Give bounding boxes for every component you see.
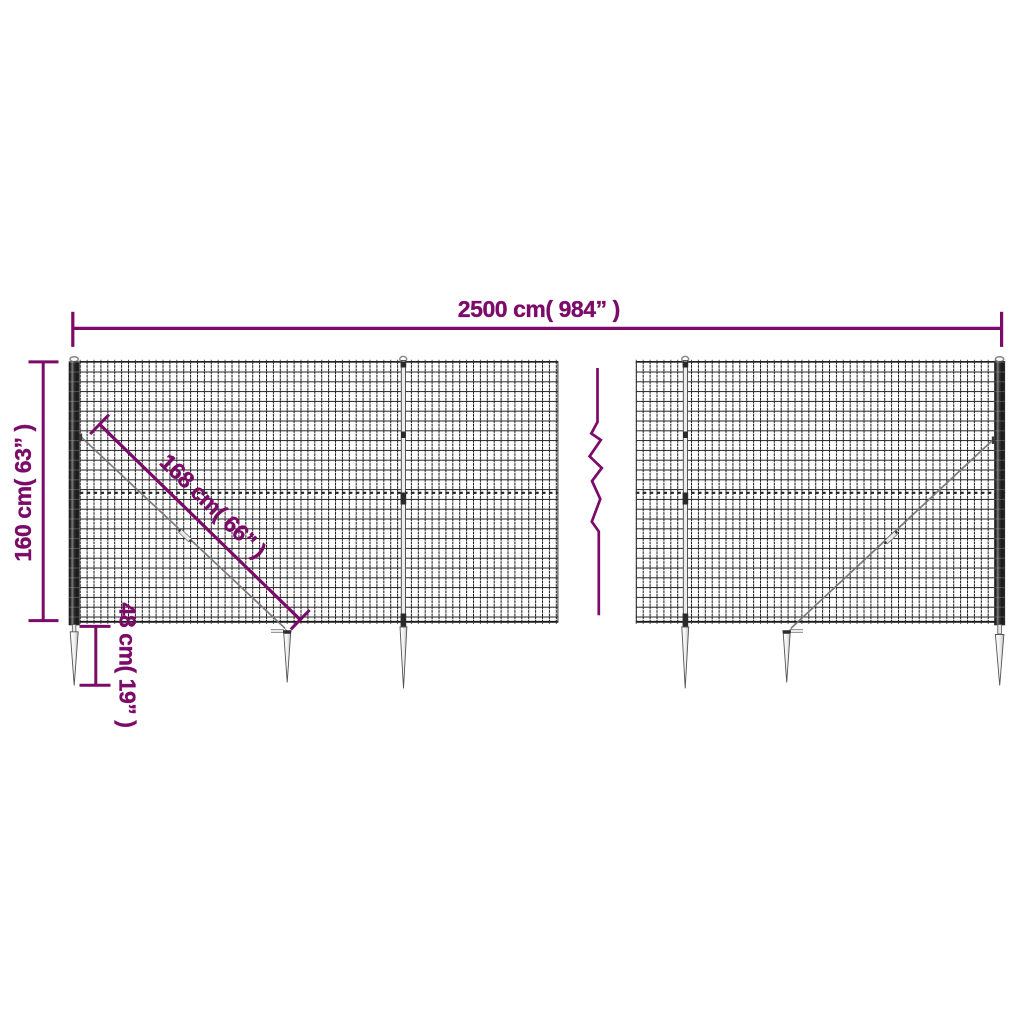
svg-text:48 cm( 19” ): 48 cm( 19” ) <box>115 603 141 728</box>
svg-text:2500 cm( 984” ): 2500 cm( 984” ) <box>458 296 620 322</box>
svg-text:160 cm( 63” ): 160 cm( 63” ) <box>10 424 36 561</box>
